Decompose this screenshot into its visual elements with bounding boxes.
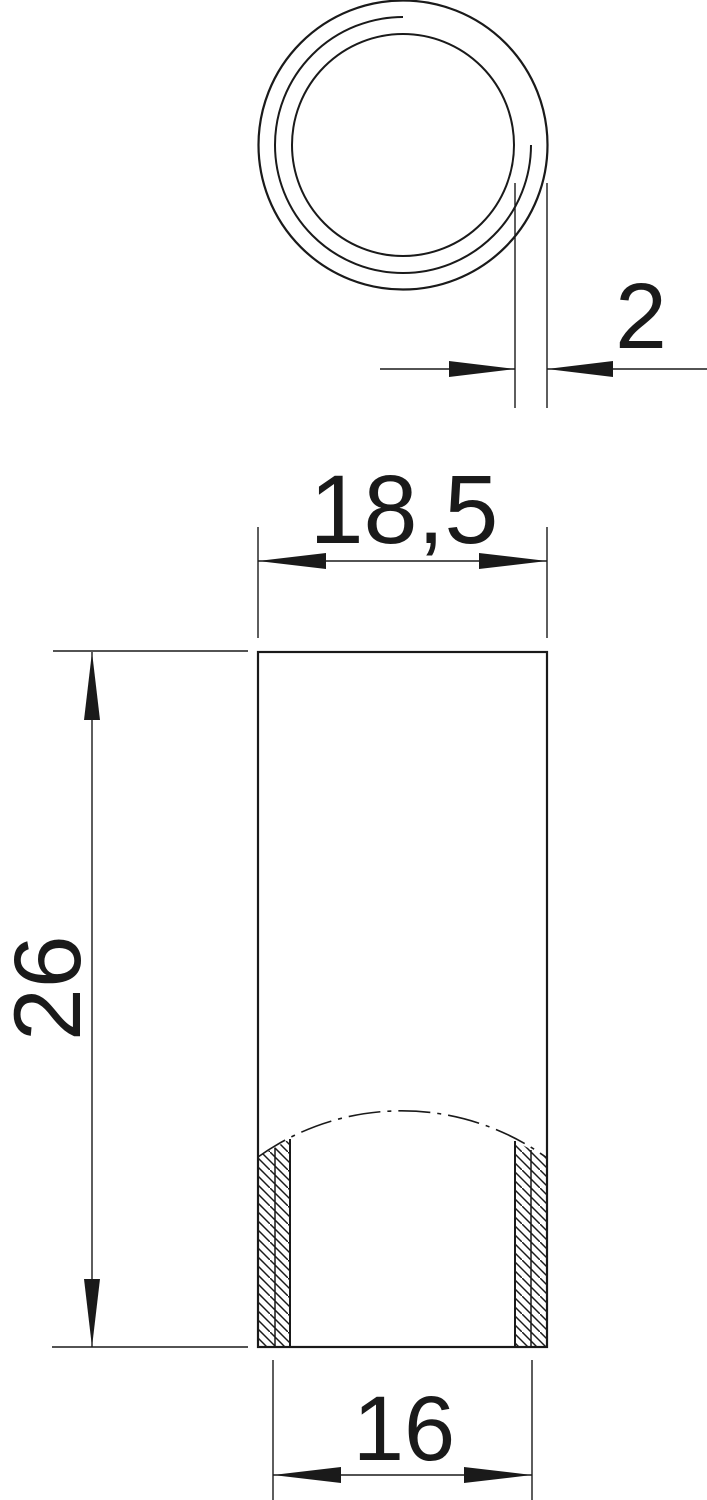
outer-diameter-circle: [259, 1, 548, 290]
dimension-label-thread-diameter: 16: [353, 1378, 455, 1480]
arrowhead-icon: [84, 652, 100, 720]
technical-drawing-canvas: 2 18,5 26: [0, 0, 707, 1500]
dimension-label-overall-length: 26: [0, 935, 101, 1041]
top-view: [259, 1, 548, 290]
thread-circle-arc: [275, 17, 531, 273]
arrowhead-icon: [273, 1467, 341, 1483]
bore-circle: [292, 34, 514, 256]
dimension-overall-length: 26: [0, 651, 248, 1347]
pipe-body-outline: [258, 652, 547, 1347]
arrowhead-icon: [547, 361, 613, 377]
arrowhead-icon: [464, 1467, 532, 1483]
drawing-svg: 2 18,5 26: [0, 0, 707, 1500]
section-hatch-left: [258, 1139, 290, 1347]
dimension-thread-diameter: 16: [273, 1360, 532, 1500]
dimension-label-wall-thickness: 2: [615, 264, 667, 368]
arrowhead-icon: [449, 361, 515, 377]
thread-depth-centerline-arc: [258, 1111, 547, 1158]
front-view: [258, 652, 547, 1347]
dimension-label-outer-width: 18,5: [310, 455, 499, 564]
dimension-outer-width: 18,5: [258, 455, 547, 638]
arrowhead-icon: [84, 1279, 100, 1347]
dimension-wall-thickness: 2: [380, 183, 707, 408]
